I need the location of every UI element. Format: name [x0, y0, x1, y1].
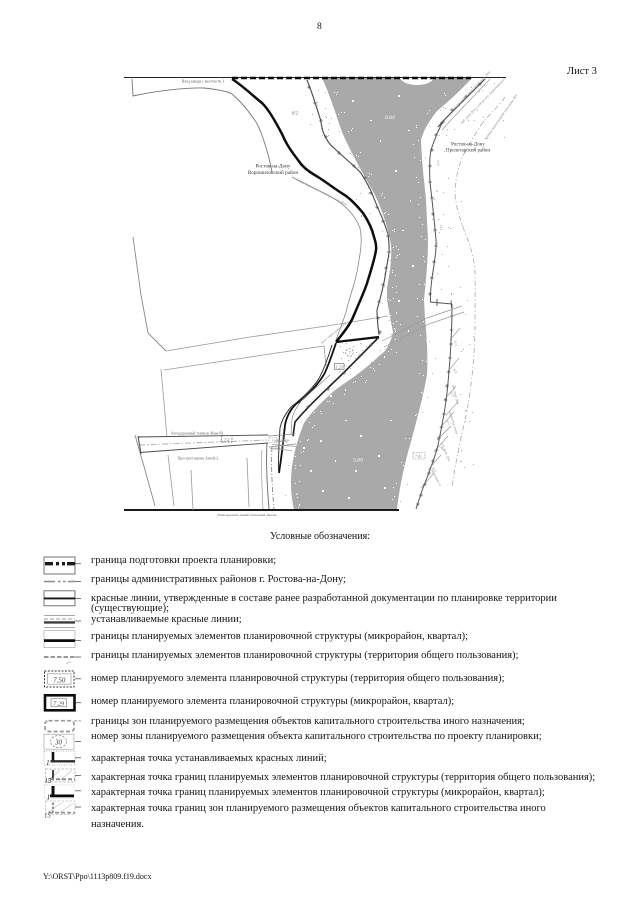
svg-text:15: 15: [45, 778, 52, 785]
svg-text:23.1: 23.1: [453, 340, 459, 347]
svg-text:прич. 2: прич. 2: [274, 446, 284, 450]
svg-text:6/2: 6/2: [292, 111, 299, 117]
svg-text:Автодорожный тоннель Жим-69: Автодорожный тоннель Жим-69: [171, 432, 223, 436]
svg-text:ул. Береговая: ул. Береговая: [272, 438, 290, 442]
svg-text:14.2: 14.2: [439, 225, 444, 231]
svg-text:граница водоохранной зоны реки: граница водоохранной зоны реки Дон: [484, 93, 519, 140]
svg-text:7.41: 7.41: [415, 454, 422, 459]
svg-text:7.50: 7.50: [53, 677, 66, 685]
svg-text:1.23: 1.23: [336, 364, 343, 369]
svg-text:План красных линий. Основной ч: План красных линий. Основной чертеж: [217, 513, 277, 517]
svg-text:15: 15: [44, 812, 51, 819]
svg-text:7.2: 7.2: [224, 437, 229, 442]
svg-text:7.29: 7.29: [53, 700, 64, 707]
svg-text:5.60: 5.60: [353, 458, 363, 464]
svg-text:Проспект имени Антей-2: Проспект имени Антей-2: [178, 457, 219, 461]
svg-text:1: 1: [47, 793, 51, 802]
svg-text:Ростов-на-Дону: Ростов-на-Дону: [451, 143, 485, 148]
svg-text:Береговая ул.: Береговая ул.: [430, 469, 443, 488]
svg-text:Ворошиловский район: Ворошиловский район: [248, 169, 299, 176]
svg-text:1: 1: [46, 758, 50, 767]
svg-text:30: 30: [54, 740, 62, 747]
svg-text:Вход завода с мостом № 1: Вход завода с мостом № 1: [182, 80, 224, 84]
svg-text:Пролетарский район: Пролетарский район: [446, 149, 490, 154]
svg-text:6.60: 6.60: [385, 115, 395, 121]
svg-text:22.8: 22.8: [452, 368, 458, 375]
svg-text:12.6: 12.6: [436, 160, 441, 166]
svg-text:Ростов-на-Дону: Ростов-на-Дону: [255, 164, 290, 170]
svg-text:7: 7: [349, 350, 352, 355]
